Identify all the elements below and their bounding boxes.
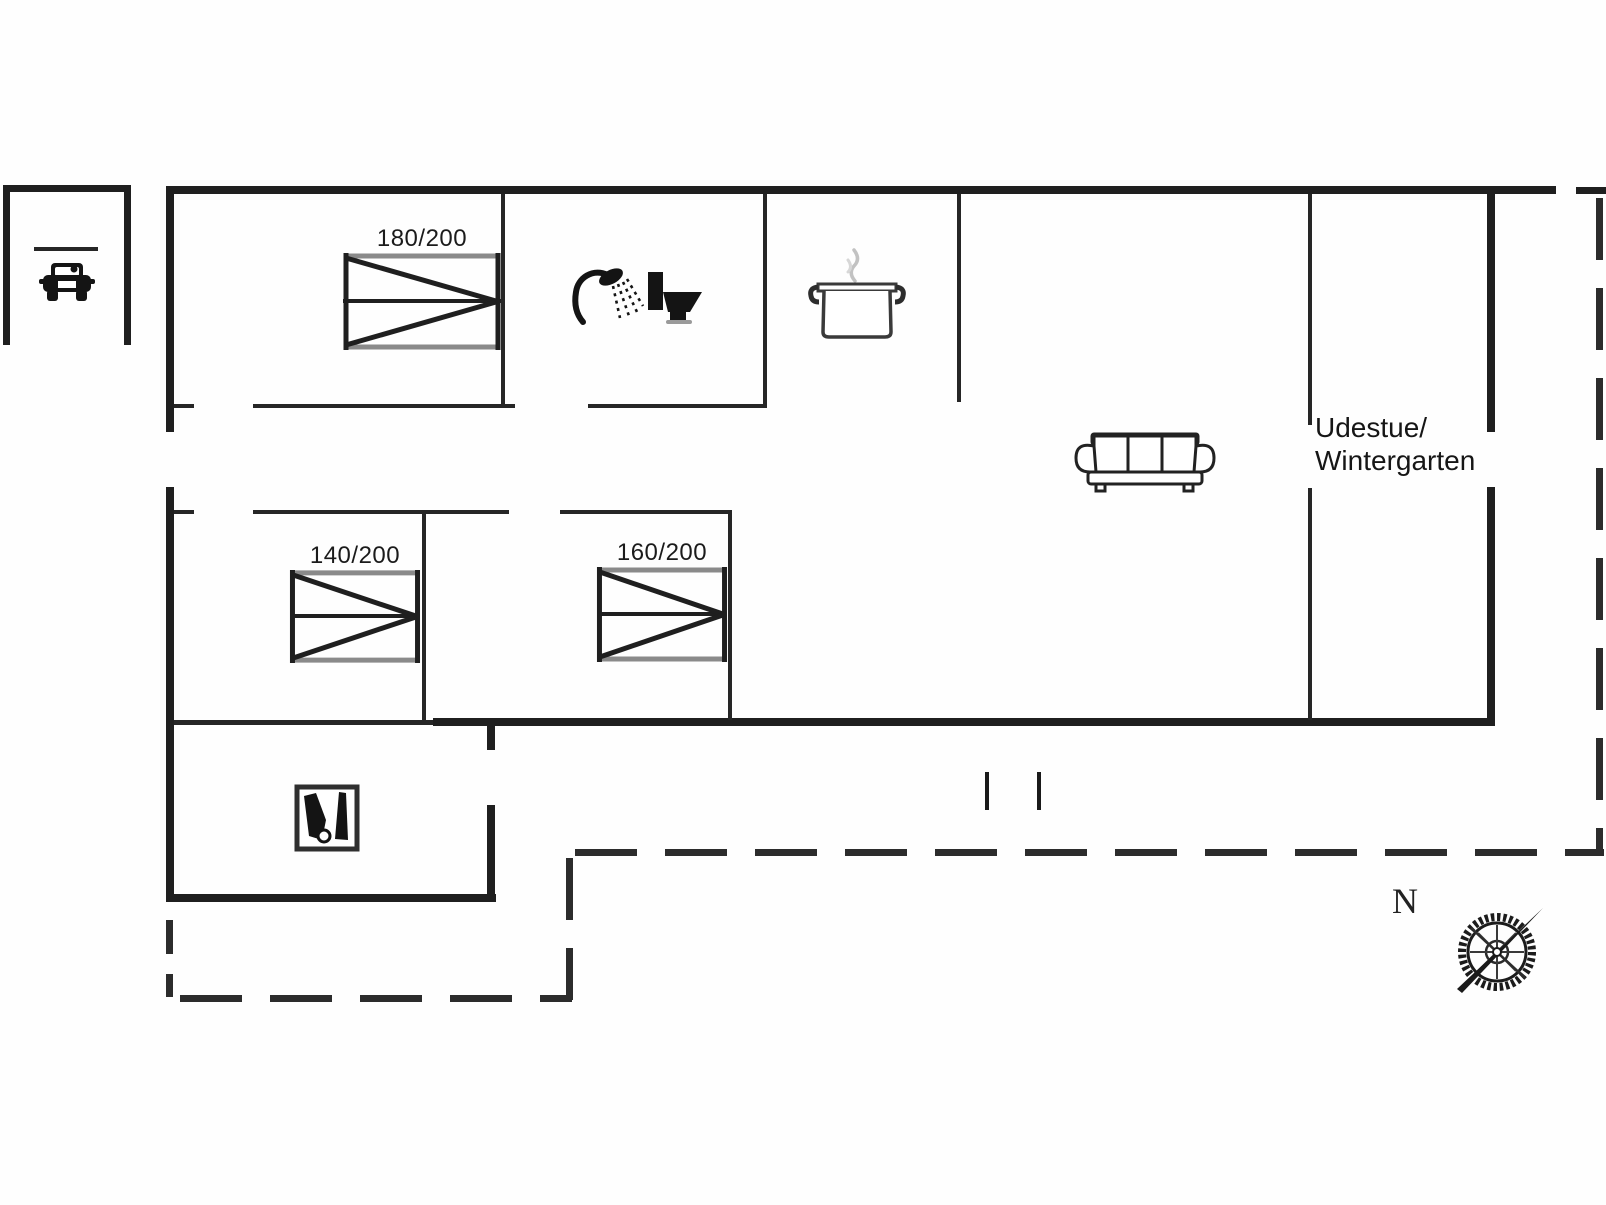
toilet-icon xyxy=(646,270,704,338)
carport-wall-left xyxy=(3,185,10,345)
bed-size-label: 160/200 xyxy=(597,540,727,566)
wall-hall-lower-tick xyxy=(174,510,194,514)
wall-hall-upper-a xyxy=(253,404,515,408)
double-bed-icon xyxy=(343,253,501,350)
room-label-line1: Udestue/ xyxy=(1315,411,1475,444)
wall-top xyxy=(166,186,1556,194)
terrace-step-mark-1 xyxy=(985,772,989,810)
wall-hall-lower-a xyxy=(253,510,509,514)
wall-kitchen-divider xyxy=(957,194,961,402)
wall-left-upper xyxy=(166,186,174,432)
compass-rose-icon xyxy=(1443,898,1551,1006)
car-icon xyxy=(38,257,96,305)
terrace-step-mark-2 xyxy=(1037,772,1041,810)
wall-bedroom1-right xyxy=(501,194,505,407)
wall-bedroom2-3-divider xyxy=(422,514,426,720)
terrace-boundary-annex-left xyxy=(166,920,173,997)
room-label-udestue: Udestue/ Wintergarten xyxy=(1315,411,1475,477)
cooking-pot-icon xyxy=(806,246,908,341)
wall-udestue-left-lower xyxy=(1308,488,1312,720)
wall-right-lower xyxy=(1487,487,1495,718)
terrace-boundary-right xyxy=(1596,198,1603,852)
wall-bottom-main xyxy=(433,718,1495,726)
terrace-boundary-mid-vertical xyxy=(566,858,573,1000)
bed-size-label: 180/200 xyxy=(343,226,501,252)
wall-annex-right-lower xyxy=(487,805,495,902)
double-bed-icon xyxy=(290,570,420,663)
wall-hall-lower-b xyxy=(560,510,732,514)
wall-left-lower xyxy=(166,487,174,902)
shower-icon xyxy=(568,266,646,338)
stove-icon xyxy=(294,784,360,852)
wall-hall-upper-tick xyxy=(174,404,194,408)
double-bed-icon xyxy=(597,567,727,662)
wall-udestue-left-upper xyxy=(1308,194,1312,425)
wall-hall-upper-b xyxy=(588,404,767,408)
floor-plan: 180/200 140/200 160/200 xyxy=(0,0,1606,1205)
carport-wall-right xyxy=(124,185,131,345)
carport-line xyxy=(34,247,98,251)
wall-right-upper xyxy=(1487,194,1495,432)
wall-top-right-dash xyxy=(1576,187,1606,194)
carport-wall-top xyxy=(3,185,131,192)
bed-size-label: 140/200 xyxy=(290,543,420,569)
wall-bedroom3-right xyxy=(728,514,732,720)
wall-bathroom-right xyxy=(763,194,767,407)
terrace-boundary-annex-bottom xyxy=(180,995,572,1002)
sofa-icon xyxy=(1072,428,1218,496)
wall-annex-right-stub xyxy=(487,723,495,750)
terrace-boundary-bottom xyxy=(575,849,1604,856)
wall-annex-bottom xyxy=(166,894,496,902)
wall-bottom-inner xyxy=(174,720,433,725)
room-label-line2: Wintergarten xyxy=(1315,444,1475,477)
north-label: N xyxy=(1392,880,1418,922)
